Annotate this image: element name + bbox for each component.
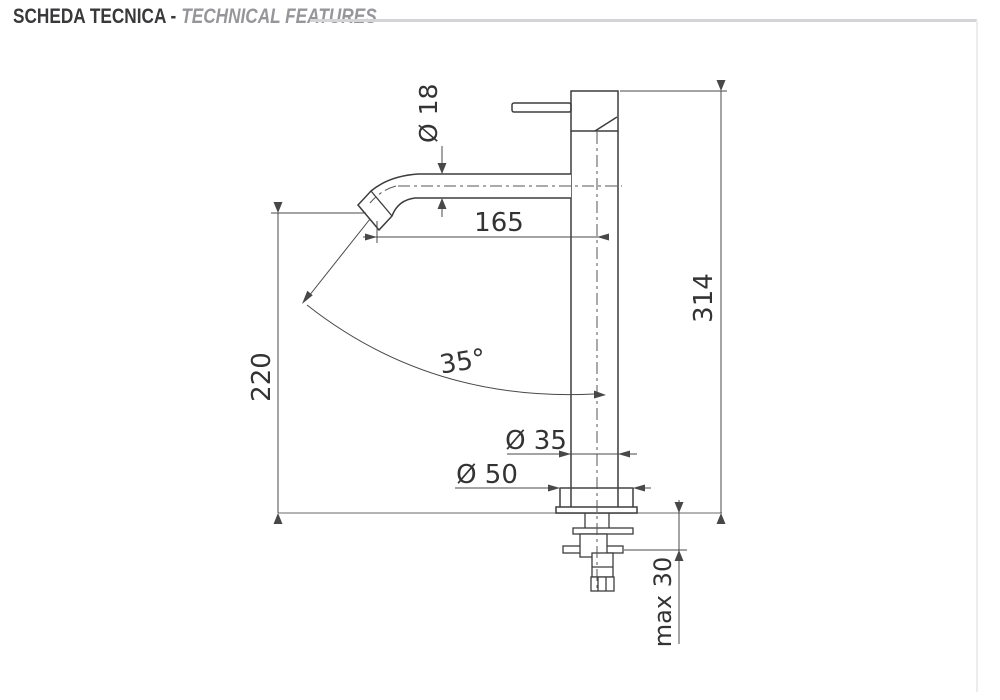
dim-label-body-diameter: Ø 35 — [505, 426, 567, 456]
dim-label-spout-reach: 165 — [474, 208, 524, 238]
tailpiece — [592, 553, 613, 577]
centerlines — [370, 132, 622, 592]
dim-arrow — [618, 451, 630, 458]
dim-label-spout-height: 220 — [247, 352, 277, 402]
cartridge-head — [571, 91, 618, 131]
dim-arrow — [597, 234, 609, 241]
dim-arrow — [438, 198, 447, 209]
dim-label-total-height: 314 — [689, 273, 719, 323]
dim-arrow — [675, 502, 684, 513]
dim-total-height: 314 — [620, 80, 727, 524]
dim-base-diameter: Ø 50 — [455, 460, 651, 492]
spout-fill — [358, 174, 571, 230]
dim-spout-angle: 35° — [302, 219, 606, 399]
dim-arrow — [438, 163, 447, 174]
dim-arrow — [717, 513, 726, 524]
dim-label-spout-angle: 35° — [438, 344, 488, 381]
dim-label-max-deck-thickness: max 30 — [649, 557, 677, 647]
dim-label-spout-diameter: Ø 18 — [414, 84, 443, 143]
technical-sheet: SCHEDA TECNICA -TECHNICAL FEATURES — [0, 0, 1000, 700]
dim-arrow — [633, 485, 645, 492]
dim-spout-reach: 165 — [363, 208, 609, 243]
mounting-hardware — [563, 513, 633, 591]
dim-label-base-diameter: Ø 50 — [456, 460, 518, 490]
faucet-spout — [358, 174, 571, 230]
mounting-washer — [573, 528, 633, 534]
dim-arrow — [717, 80, 726, 91]
head-chamfer-line — [595, 117, 617, 131]
dim-arrow — [365, 234, 377, 241]
handle-lever — [512, 103, 571, 112]
faucet-technical-drawing: Ø 18 165 314 220 — [0, 0, 1000, 700]
dim-arrow — [548, 485, 560, 492]
dim-spout-height: 220 — [247, 202, 366, 524]
dim-arrow — [274, 513, 283, 524]
dim-max-deck-thickness: max 30 — [624, 500, 687, 647]
dim-arrow — [594, 391, 606, 399]
hose-nut — [591, 577, 614, 591]
dim-arrow — [274, 202, 283, 213]
